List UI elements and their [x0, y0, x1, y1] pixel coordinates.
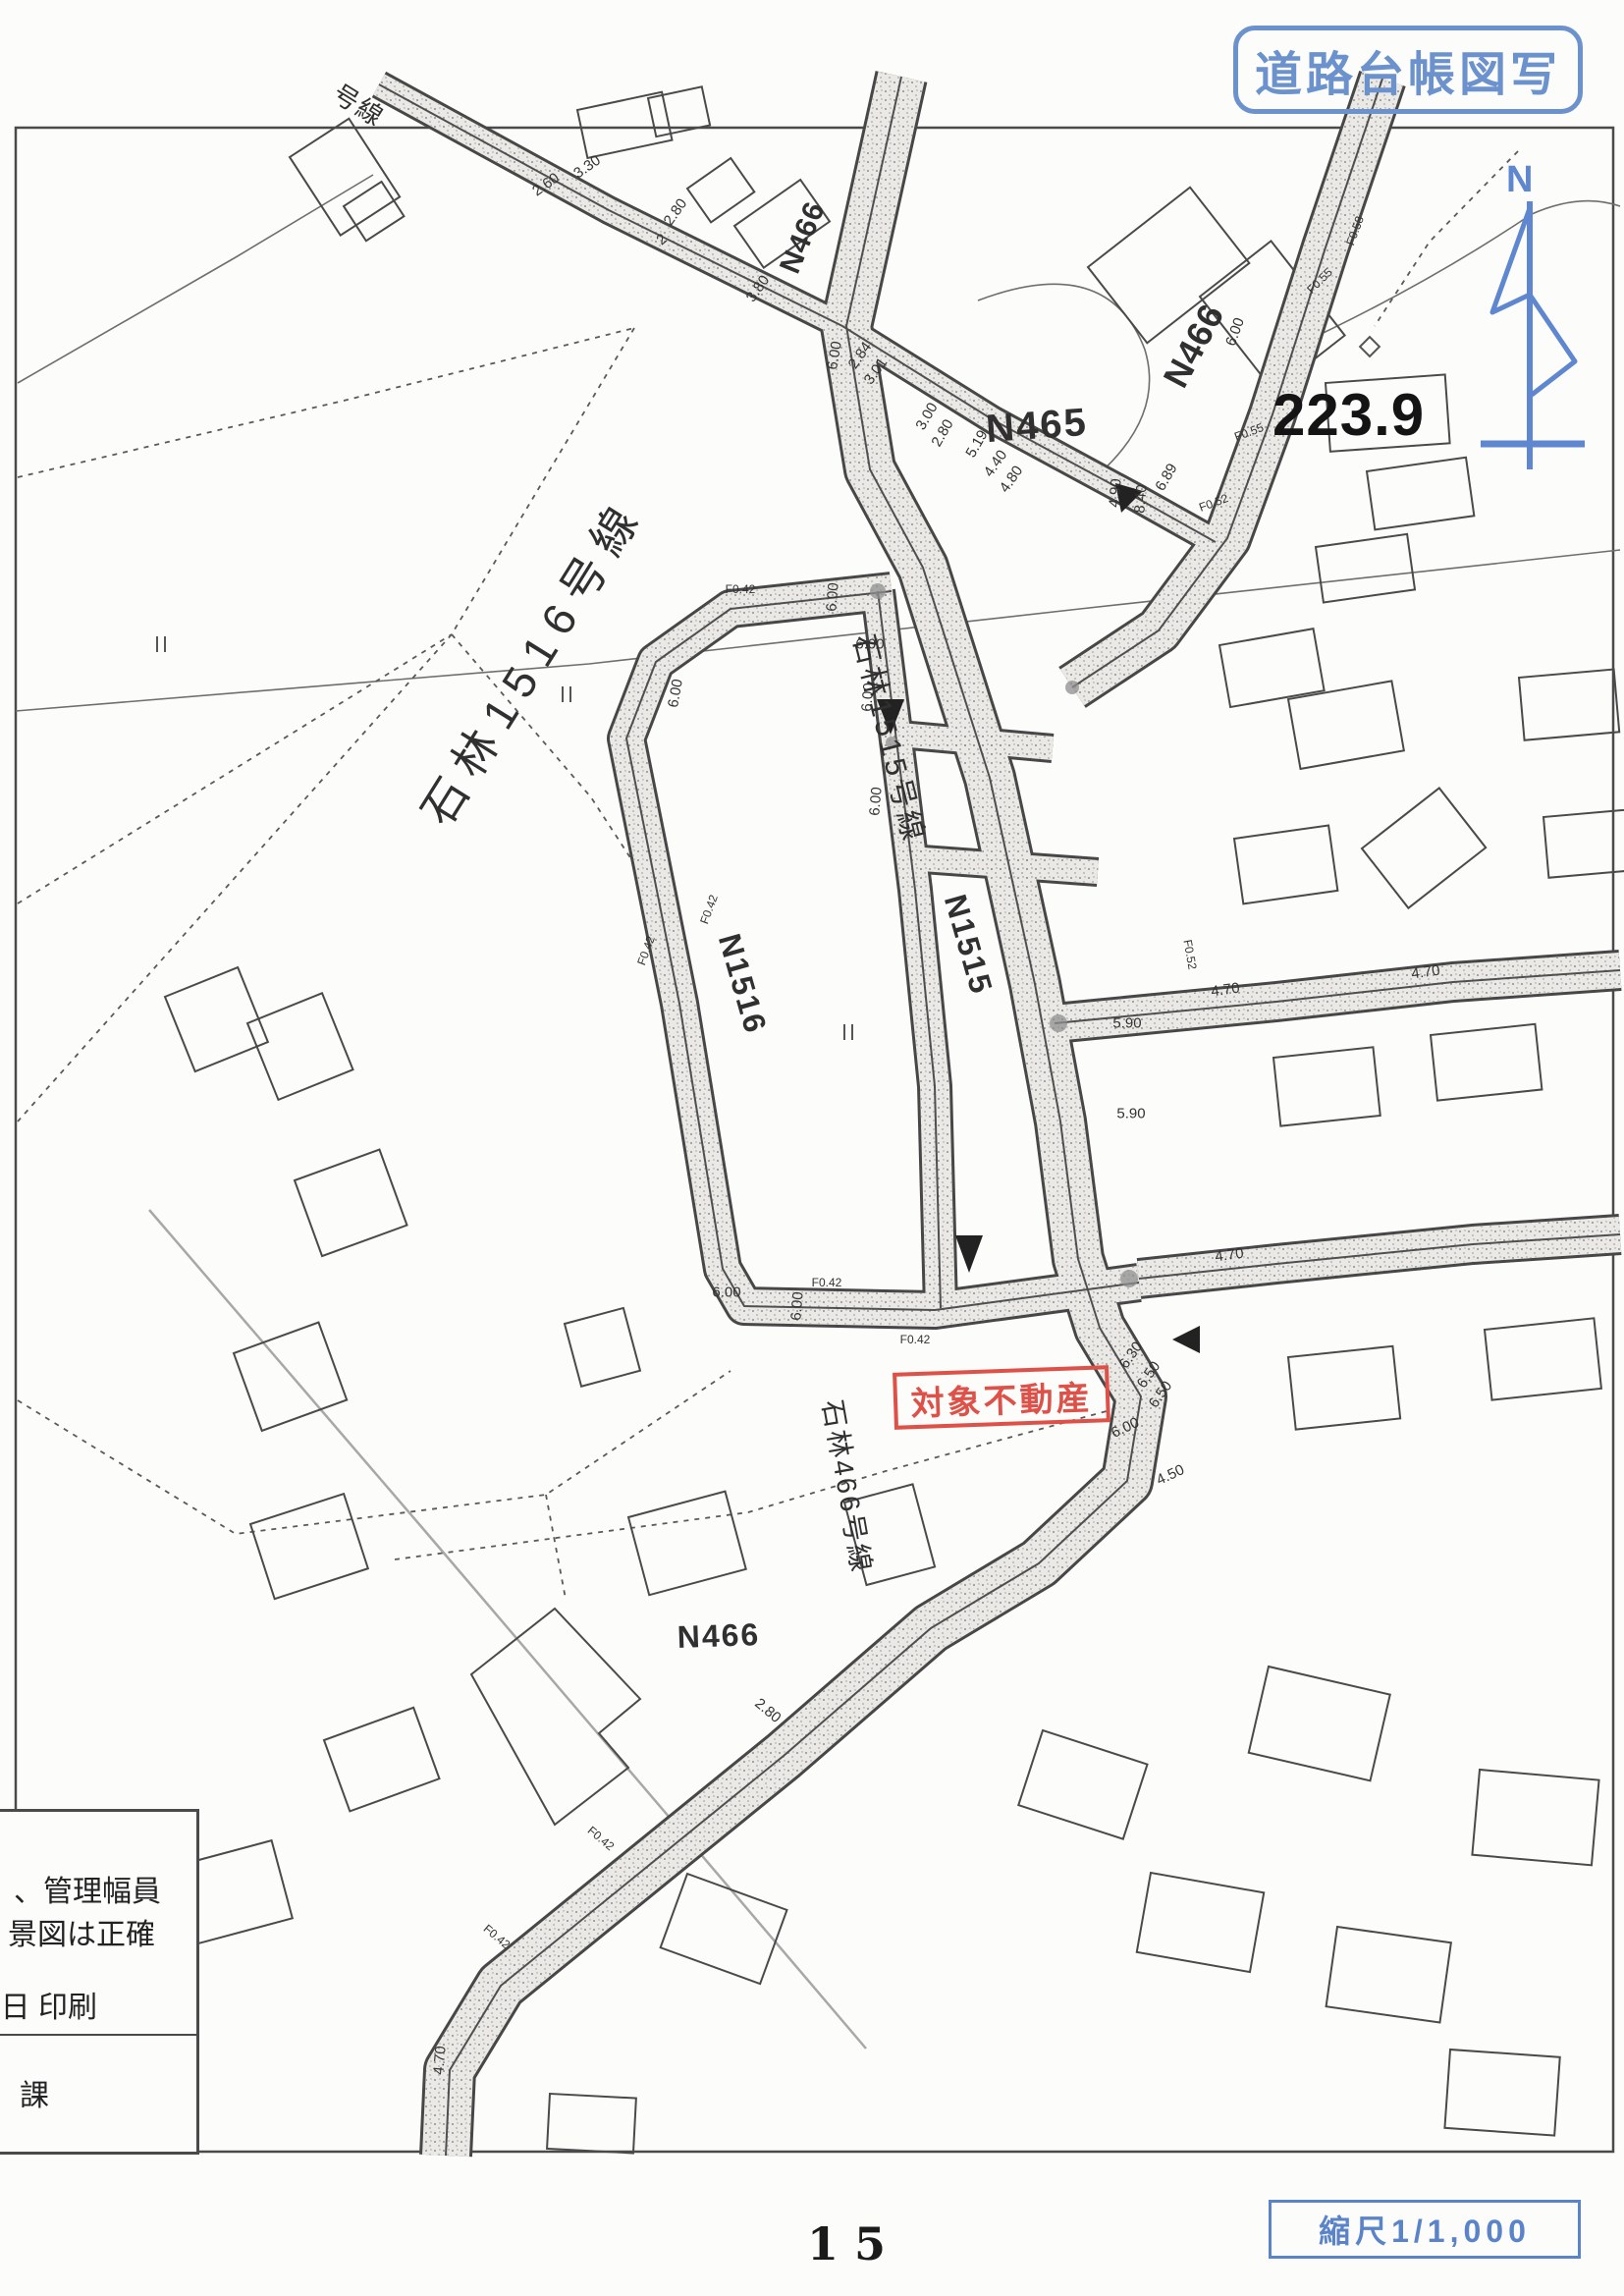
- info-box: 、管理幅員 景図は正確 0日 印刷 課: [0, 1809, 199, 2155]
- map-canvas: [0, 0, 1624, 2296]
- target-property-stamp-label: 対象不動産: [910, 1370, 1094, 1424]
- road-register-map-page: 道路台帳図写 N 223.9 号線N466N465N466石林1516号線石林1…: [0, 0, 1624, 2296]
- north-label: N: [1506, 159, 1533, 201]
- title-stamp-label: 道路台帳図写: [1255, 35, 1561, 104]
- info-box-line-2: 景図は正確: [8, 1910, 155, 1953]
- info-box-line-4: 課: [20, 2071, 49, 2114]
- roads-fill-layer: [379, 77, 1620, 2156]
- scale-stamp: 縮尺1/1,000: [1269, 2200, 1581, 2259]
- north-arrow-icon: [1481, 201, 1585, 469]
- roads-texture-layer: [379, 77, 1620, 2156]
- info-box-line-3: 0日 印刷: [0, 1983, 97, 2026]
- info-box-divider: [0, 2034, 196, 2036]
- scale-stamp-label: 縮尺1/1,000: [1319, 2207, 1531, 2252]
- roads-edge-layer: [379, 77, 1620, 2156]
- area-number: 223.9: [1272, 381, 1425, 449]
- page-number: 15: [807, 2217, 901, 2270]
- arrow-down-icon: [955, 1235, 983, 1273]
- arrow-left-icon: [1172, 1326, 1200, 1353]
- road-centerlines-layer: [379, 77, 1620, 2156]
- target-property-stamp: 対象不動産: [893, 1365, 1110, 1430]
- info-box-line-1: 、管理幅員: [14, 1867, 161, 1910]
- title-stamp: 道路台帳図写: [1233, 26, 1583, 114]
- tick-markers-layer: [157, 337, 1380, 1040]
